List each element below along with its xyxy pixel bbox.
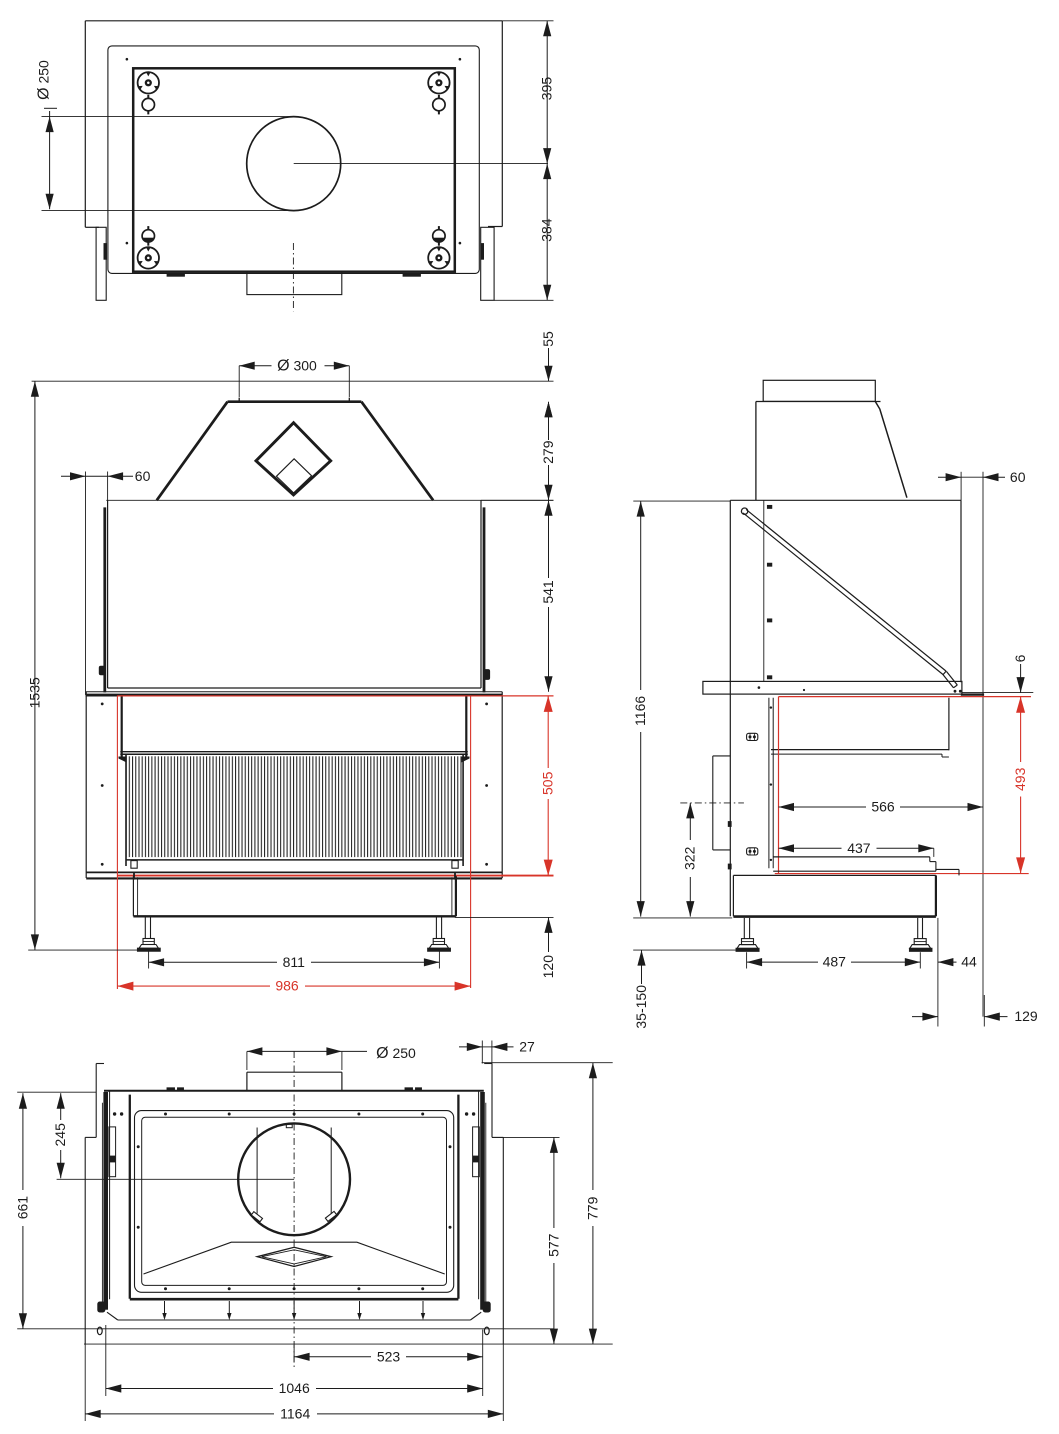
svg-text:577: 577 xyxy=(545,1233,561,1257)
svg-text:245: 245 xyxy=(52,1123,68,1147)
svg-text:44: 44 xyxy=(961,954,977,970)
svg-text:129: 129 xyxy=(1014,1008,1038,1024)
svg-text:1166: 1166 xyxy=(632,696,648,726)
svg-text:523: 523 xyxy=(377,1348,401,1364)
svg-text:6: 6 xyxy=(1012,654,1028,662)
svg-text:986: 986 xyxy=(275,978,299,994)
svg-text:60: 60 xyxy=(1010,469,1026,485)
svg-text:811: 811 xyxy=(283,954,306,970)
svg-text:1535: 1535 xyxy=(26,677,42,708)
svg-text:541: 541 xyxy=(540,580,556,604)
svg-text:Ø 300: Ø 300 xyxy=(277,358,317,375)
svg-text:487: 487 xyxy=(823,954,847,970)
svg-text:279: 279 xyxy=(540,440,556,464)
svg-text:120: 120 xyxy=(540,955,556,979)
svg-text:661: 661 xyxy=(14,1196,30,1220)
svg-text:437: 437 xyxy=(847,840,871,856)
svg-text:Ø 250: Ø 250 xyxy=(376,1045,416,1062)
svg-text:1046: 1046 xyxy=(279,1380,310,1396)
svg-text:27: 27 xyxy=(519,1039,535,1055)
svg-text:395: 395 xyxy=(539,77,555,101)
svg-text:779: 779 xyxy=(584,1196,600,1220)
svg-text:505: 505 xyxy=(540,771,556,795)
svg-text:493: 493 xyxy=(1012,767,1028,791)
svg-text:Ø 250: Ø 250 xyxy=(36,60,53,100)
svg-text:35-150: 35-150 xyxy=(633,985,649,1029)
svg-text:322: 322 xyxy=(682,846,698,870)
svg-text:1164: 1164 xyxy=(280,1405,310,1421)
svg-text:384: 384 xyxy=(539,218,555,242)
svg-text:566: 566 xyxy=(871,799,895,815)
svg-text:55: 55 xyxy=(540,331,556,347)
svg-text:60: 60 xyxy=(135,468,151,484)
